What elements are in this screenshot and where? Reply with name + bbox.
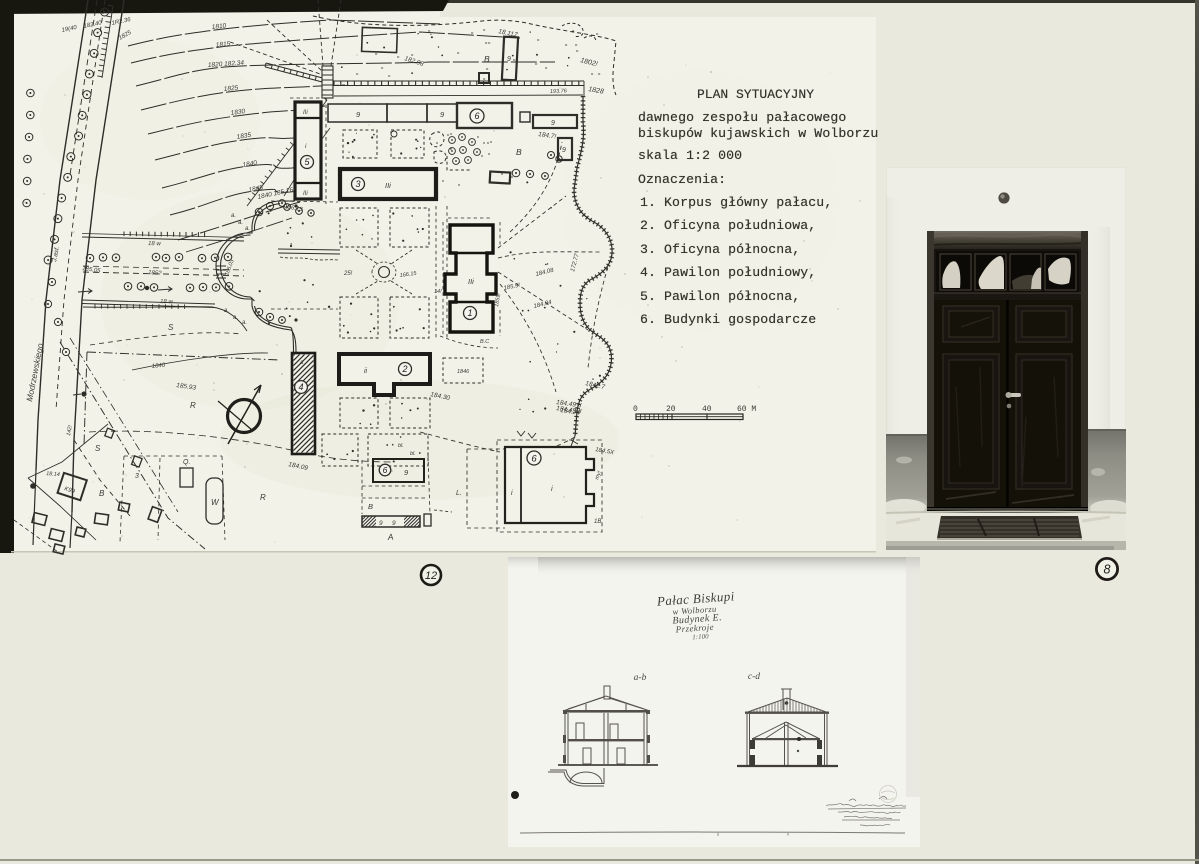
svg-text:a-b: a-b <box>634 673 647 683</box>
svg-text:IIi: IIi <box>385 181 391 190</box>
svg-text:6: 6 <box>474 111 479 121</box>
svg-text:R: R <box>260 493 266 502</box>
svg-text:1: 1 <box>467 308 472 318</box>
svg-text:1B.: 1B. <box>594 519 603 525</box>
svg-text:0: 0 <box>633 405 638 414</box>
svg-text:IIi: IIi <box>303 191 308 197</box>
svg-text:18 w: 18 w <box>160 299 174 305</box>
svg-text:185?: 185? <box>148 270 162 277</box>
svg-text:B.C: B.C <box>480 339 489 345</box>
svg-text:bl.: bl. <box>410 451 416 457</box>
svg-text:9: 9 <box>379 520 383 527</box>
svg-text:c-d: c-d <box>748 672 760 682</box>
svg-text:B: B <box>368 502 373 511</box>
svg-text:2: 2 <box>401 364 407 374</box>
svg-text:4: 4 <box>298 382 303 392</box>
svg-text:193.76: 193.76 <box>550 88 568 95</box>
svg-text:60 M: 60 M <box>737 405 756 414</box>
svg-text:B: B <box>516 147 522 157</box>
svg-text:14!: 14! <box>434 289 442 295</box>
svg-text:ii: ii <box>364 368 368 375</box>
svg-text:1846: 1846 <box>457 369 470 375</box>
svg-text:9: 9 <box>392 520 396 527</box>
svg-text:L.: L. <box>456 490 462 497</box>
svg-text:a.: a. <box>238 220 243 226</box>
svg-text:IIi: IIi <box>468 277 474 286</box>
svg-text:25!: 25! <box>343 271 353 277</box>
svg-text:18 w: 18 w <box>148 241 162 247</box>
svg-text:12: 12 <box>425 570 437 582</box>
svg-text:9: 9 <box>507 56 511 63</box>
svg-text:8: 8 <box>1104 563 1111 577</box>
svg-text:IIi: IIi <box>303 110 308 116</box>
svg-text:3: 3 <box>355 179 360 189</box>
svg-text:B: B <box>484 54 490 64</box>
svg-text:a.: a. <box>231 213 236 219</box>
svg-text:bl.: bl. <box>398 443 404 449</box>
svg-text:1:100: 1:100 <box>692 632 709 641</box>
svg-text:3: 3 <box>135 473 139 480</box>
svg-text:A: A <box>386 532 394 543</box>
svg-text:20: 20 <box>666 405 676 414</box>
svg-text:R: R <box>190 401 196 410</box>
svg-text:S: S <box>95 444 101 453</box>
svg-text:6: 6 <box>383 465 388 475</box>
svg-text:9: 9 <box>551 120 555 127</box>
svg-text:Q.: Q. <box>183 459 190 466</box>
svg-text:B: B <box>99 489 105 498</box>
svg-text:18.14: 18.14 <box>46 471 60 478</box>
svg-text:40: 40 <box>702 405 712 414</box>
svg-text:S: S <box>168 323 174 332</box>
svg-text:9: 9 <box>562 147 566 154</box>
svg-text:6: 6 <box>531 453 537 464</box>
svg-text:a.: a. <box>245 226 250 232</box>
